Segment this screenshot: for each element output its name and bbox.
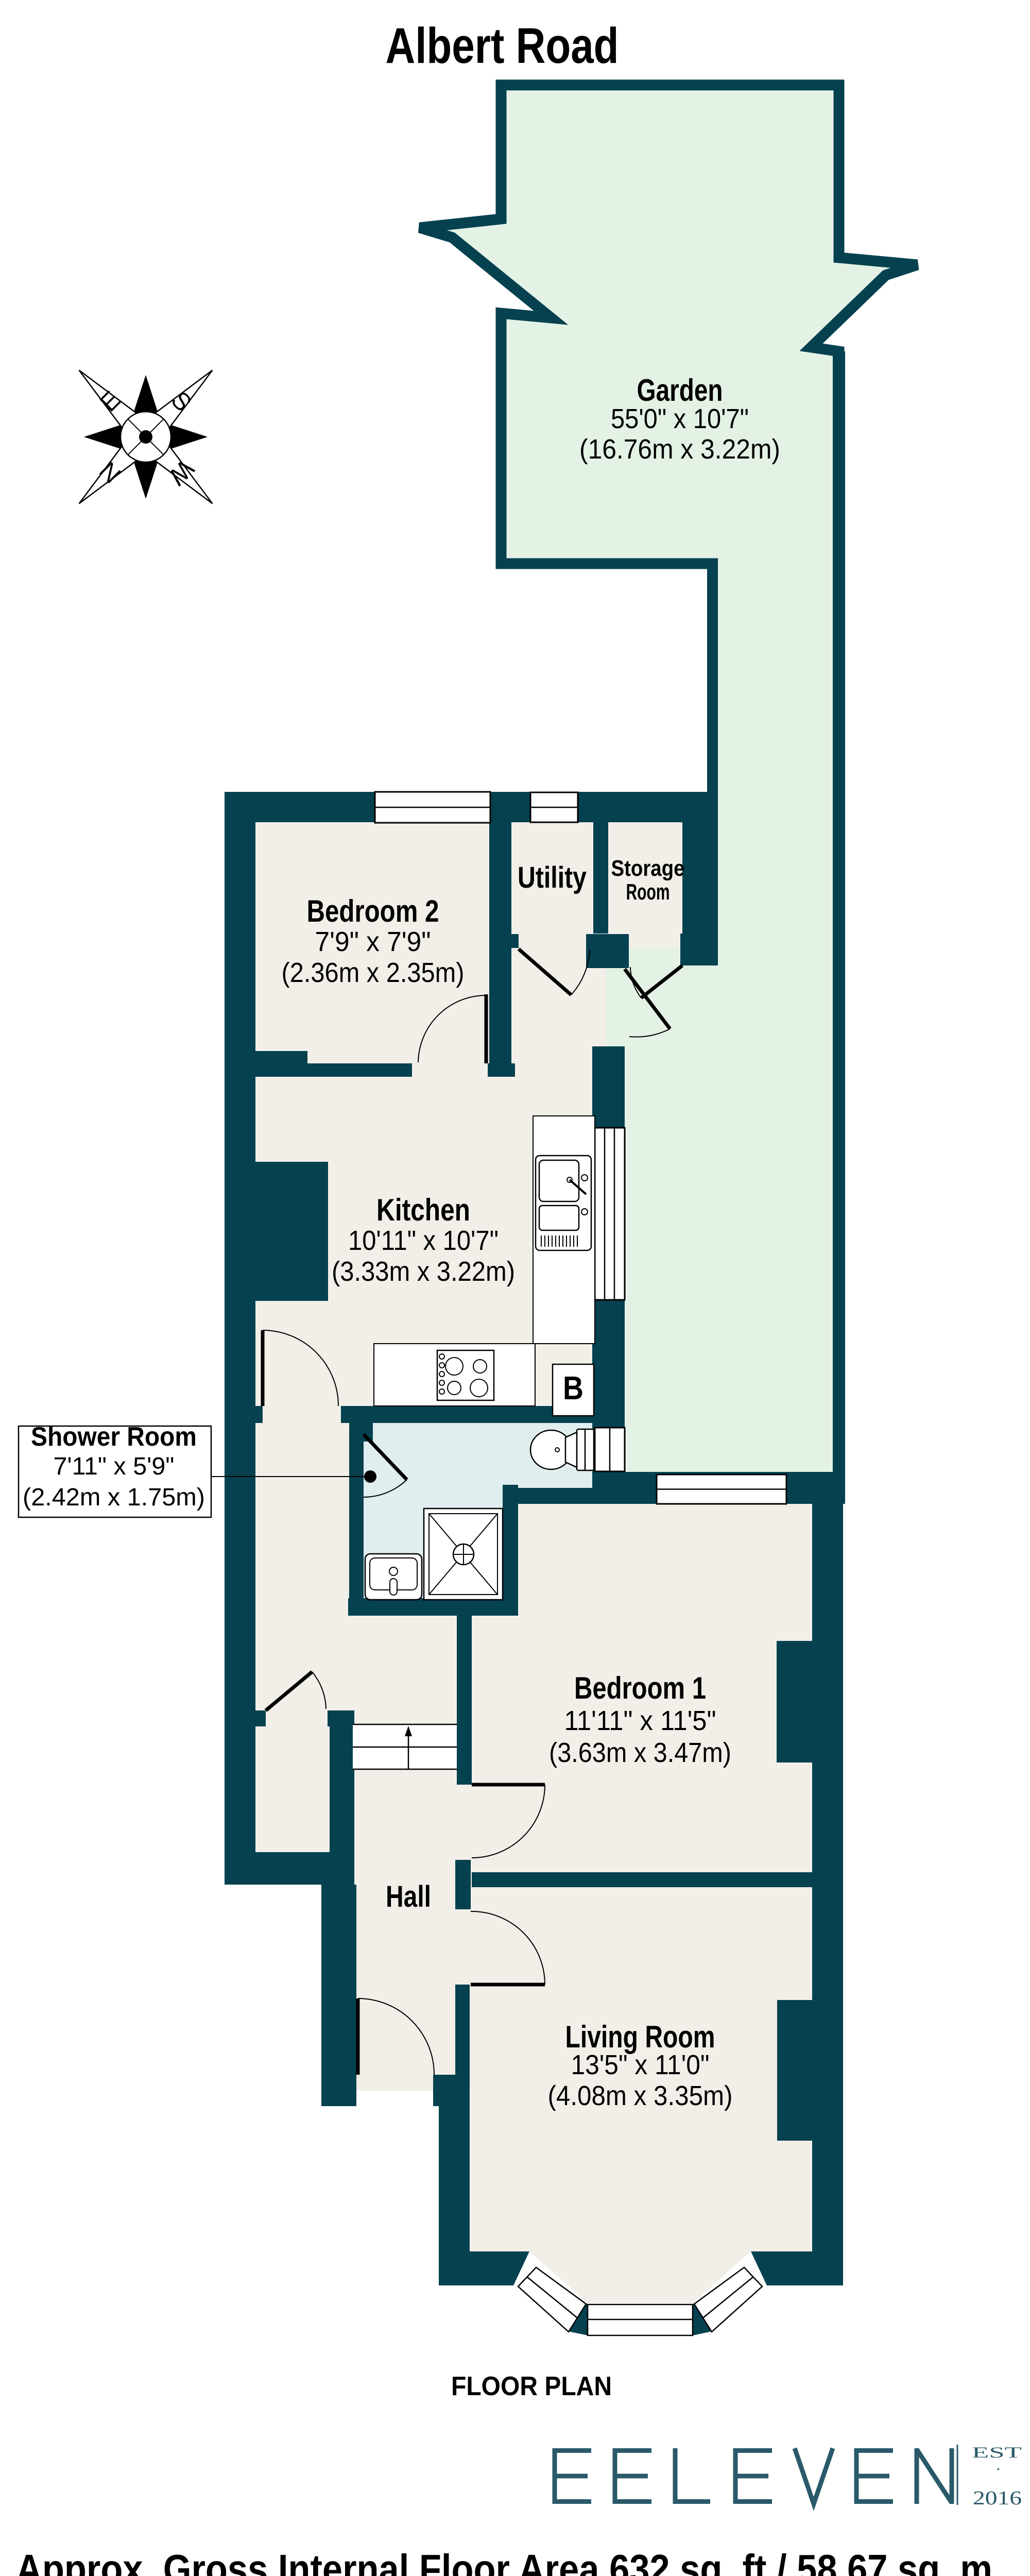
svg-text:(3.33m x 3.22m): (3.33m x 3.22m) [332, 1256, 515, 1287]
svg-text:55'0" x 10'7": 55'0" x 10'7" [611, 403, 749, 434]
svg-text:Utility: Utility [518, 861, 587, 894]
svg-text:(4.08m x 3.35m): (4.08m x 3.35m) [548, 2080, 733, 2111]
svg-text:Approx. Gross Internal Floor A: Approx. Gross Internal Floor Area 632 sq… [16, 2546, 992, 2576]
svg-text:7'11" x 5'9": 7'11" x 5'9" [54, 1453, 175, 1480]
svg-text:Albert Road: Albert Road [386, 18, 619, 74]
svg-text:(2.42m x 1.75m): (2.42m x 1.75m) [23, 1484, 205, 1511]
svg-text:Storage: Storage [611, 856, 685, 881]
svg-text:11'11" x 11'5": 11'11" x 11'5" [564, 1705, 716, 1736]
svg-text:B: B [563, 1369, 583, 1406]
svg-text:Bedroom 2: Bedroom 2 [307, 894, 439, 928]
svg-text:Hall: Hall [386, 1880, 431, 1913]
svg-text:10'11" x 10'7": 10'11" x 10'7" [348, 1225, 499, 1256]
svg-text:Room: Room [626, 879, 670, 905]
svg-text:EST: EST [972, 2444, 1022, 2461]
svg-text:Shower Room: Shower Room [31, 1422, 197, 1452]
svg-text:Kitchen: Kitchen [376, 1193, 470, 1227]
svg-text:FLOOR PLAN: FLOOR PLAN [451, 2371, 612, 2401]
svg-text:(16.76m x 3.22m): (16.76m x 3.22m) [579, 434, 780, 465]
svg-text:Living Room: Living Room [565, 2020, 715, 2054]
svg-text:·: · [995, 2460, 1001, 2478]
svg-text:Garden: Garden [637, 373, 723, 408]
svg-text:2016: 2016 [973, 2487, 1022, 2509]
svg-text:13'5" x 11'0": 13'5" x 11'0" [571, 2049, 710, 2080]
svg-text:7'9" x 7'9": 7'9" x 7'9" [315, 926, 431, 957]
svg-text:(3.63m x 3.47m): (3.63m x 3.47m) [549, 1737, 731, 1768]
svg-text:(2.36m x 2.35m): (2.36m x 2.35m) [282, 957, 465, 988]
svg-text:Bedroom 1: Bedroom 1 [574, 1671, 706, 1705]
